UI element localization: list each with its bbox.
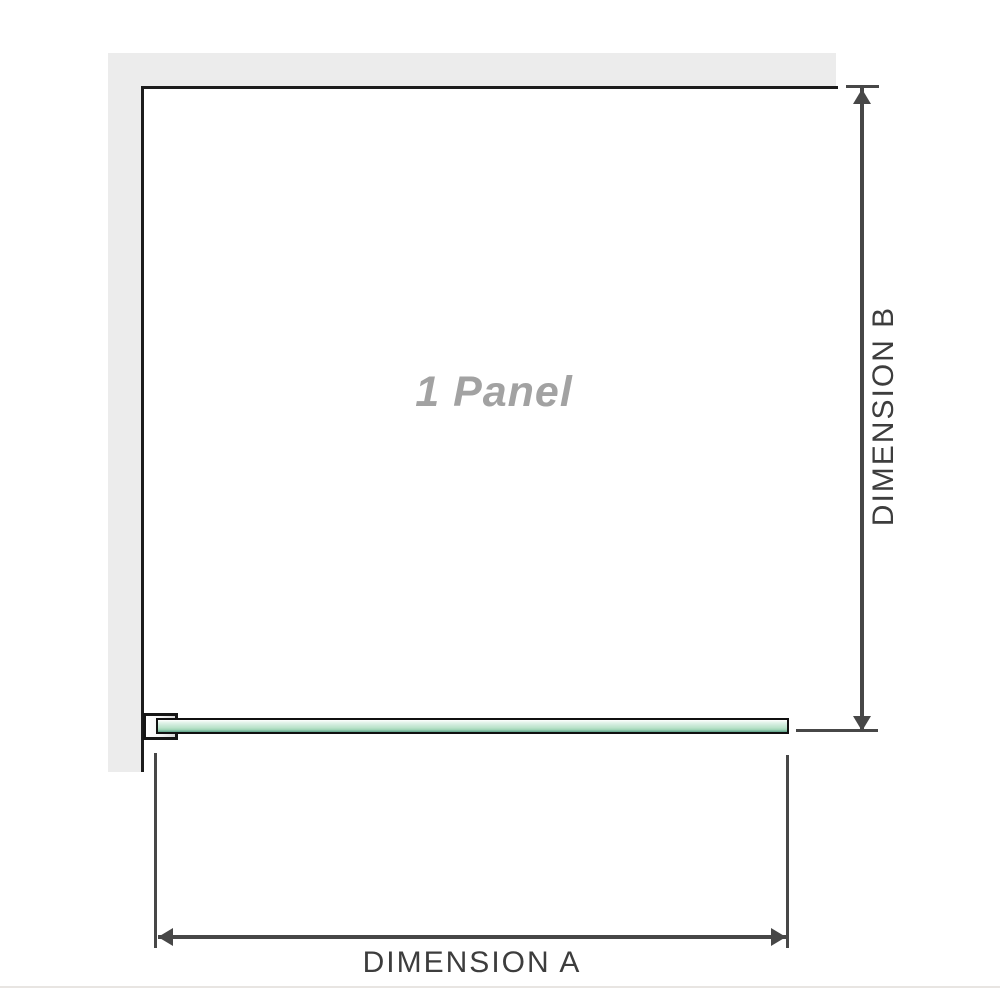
wall-left [108,53,141,772]
dimension-a-label: DIMENSION A [172,946,772,980]
bottom-divider-line [0,986,1000,988]
dimension-a-extension-left [154,753,157,948]
dimension-a-arrow-right-icon [771,928,786,946]
dimension-a-line [158,935,786,939]
panel-count-label: 1 Panel [144,368,844,417]
dimension-a-arrow-left-icon [158,928,173,946]
dimension-b-arrow-up-icon [853,89,871,104]
glass-panel [156,718,789,734]
shower-screen-diagram: 1 Panel DIMENSION B DIMENSION A [0,0,1000,1000]
dimension-b-label: DIMENSION B [864,266,904,566]
dimension-a-extension-right [786,755,789,948]
wall-top-edge-line [141,86,838,89]
dimension-b-arrow-down-icon [853,716,871,731]
wall-top [108,53,836,86]
wall-left-edge-line [141,86,144,772]
